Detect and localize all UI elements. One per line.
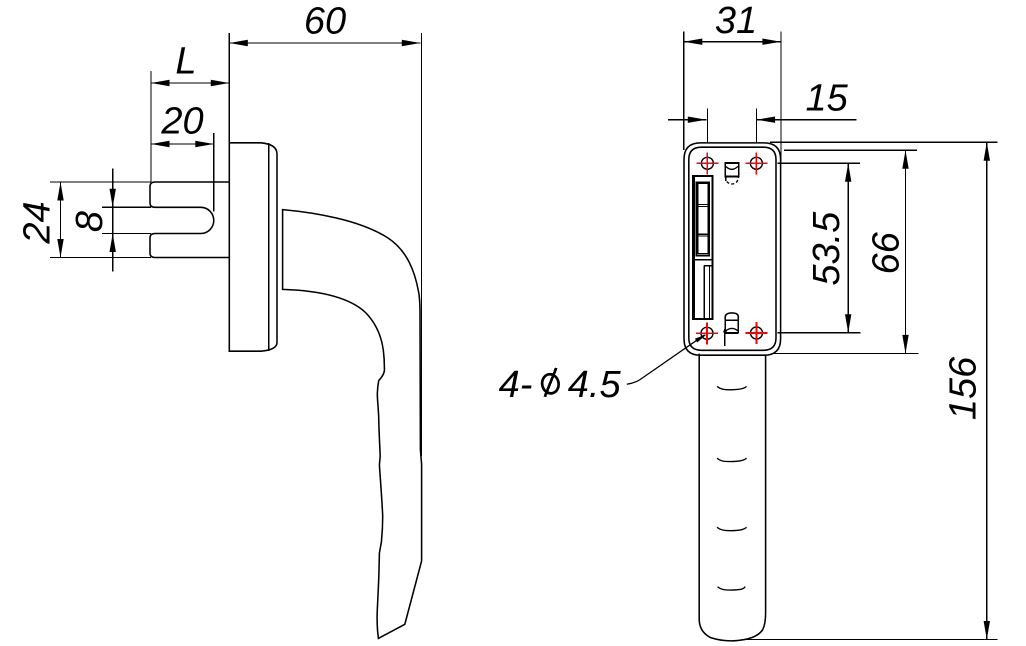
svg-text:4.5: 4.5 <box>568 364 622 406</box>
svg-text:20: 20 <box>160 101 203 143</box>
svg-text:66: 66 <box>865 231 907 274</box>
svg-text:156: 156 <box>942 356 984 420</box>
svg-text:15: 15 <box>806 78 849 120</box>
svg-text:31: 31 <box>715 0 757 42</box>
svg-text:60: 60 <box>304 1 346 43</box>
svg-text:8: 8 <box>69 211 111 232</box>
svg-text:24: 24 <box>16 201 58 244</box>
svg-text:53.5: 53.5 <box>806 211 848 286</box>
svg-text:4-: 4- <box>499 364 533 406</box>
svg-text:L: L <box>175 41 196 83</box>
